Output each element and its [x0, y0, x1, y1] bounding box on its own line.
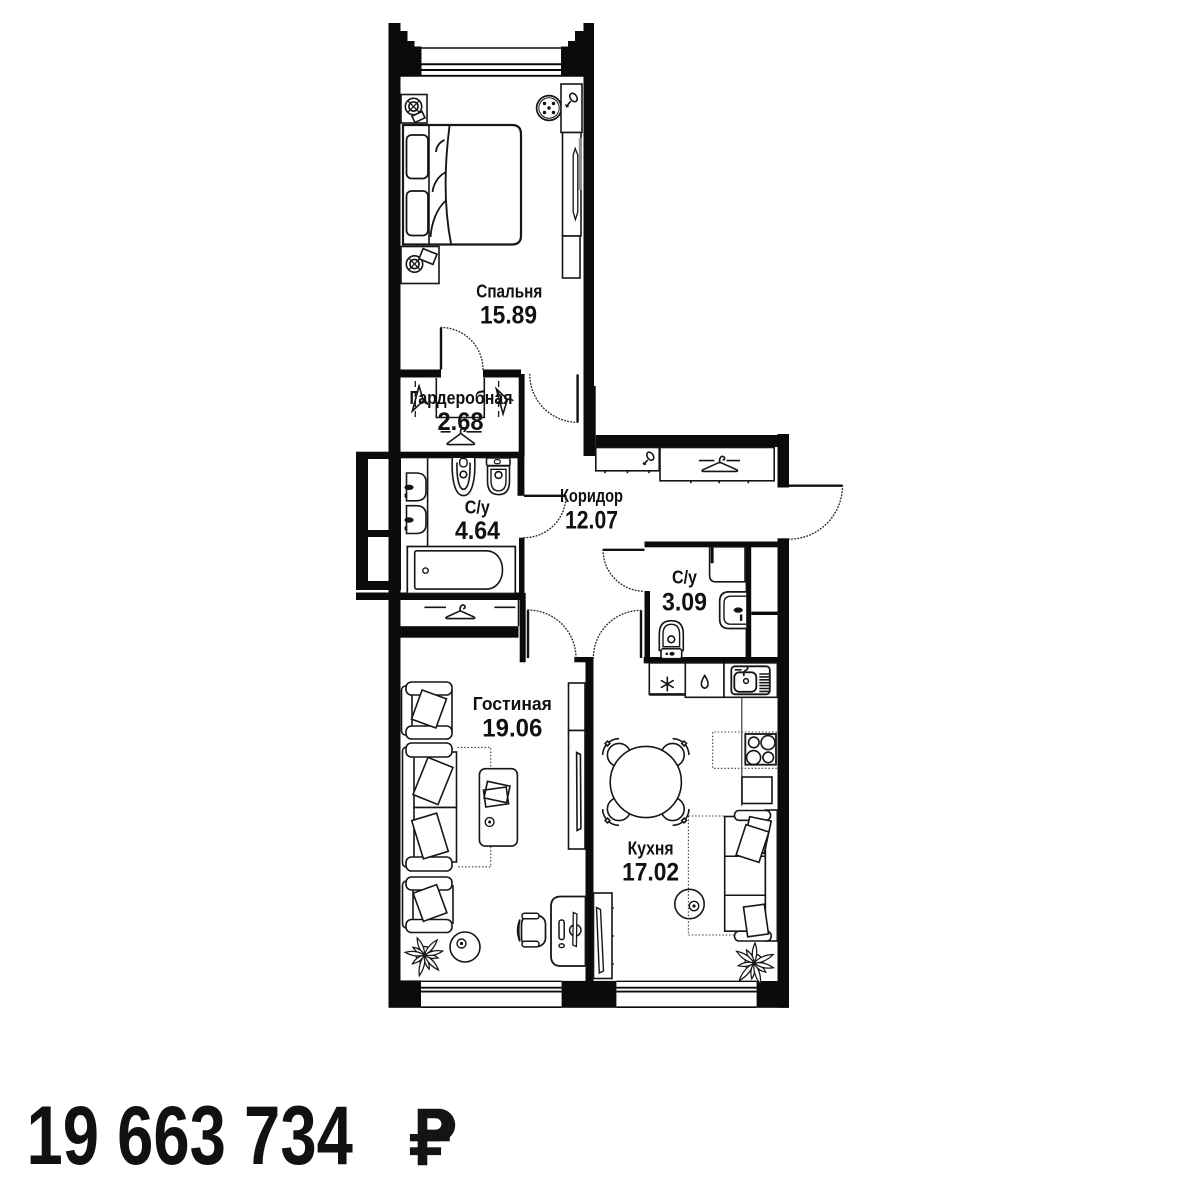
- svg-text:4.64: 4.64: [455, 518, 500, 545]
- svg-text:3.09: 3.09: [662, 590, 707, 617]
- svg-text:Спальня: Спальня: [476, 281, 542, 302]
- svg-text:Коридор: Коридор: [560, 485, 623, 506]
- svg-text:Гардеробная: Гардеробная: [410, 387, 513, 408]
- svg-text:С/у: С/у: [672, 567, 698, 588]
- svg-text:17.02: 17.02: [622, 860, 679, 887]
- svg-text:Кухня: Кухня: [628, 838, 674, 859]
- svg-text:2.68: 2.68: [438, 409, 484, 436]
- svg-text:19 663 734: 19 663 734: [27, 1088, 354, 1182]
- svg-text:Гостиная: Гостиная: [473, 693, 552, 714]
- svg-text:12.07: 12.07: [565, 508, 618, 535]
- svg-text:19.06: 19.06: [482, 716, 542, 743]
- svg-text:15.89: 15.89: [480, 302, 537, 329]
- svg-text:С/у: С/у: [465, 496, 491, 517]
